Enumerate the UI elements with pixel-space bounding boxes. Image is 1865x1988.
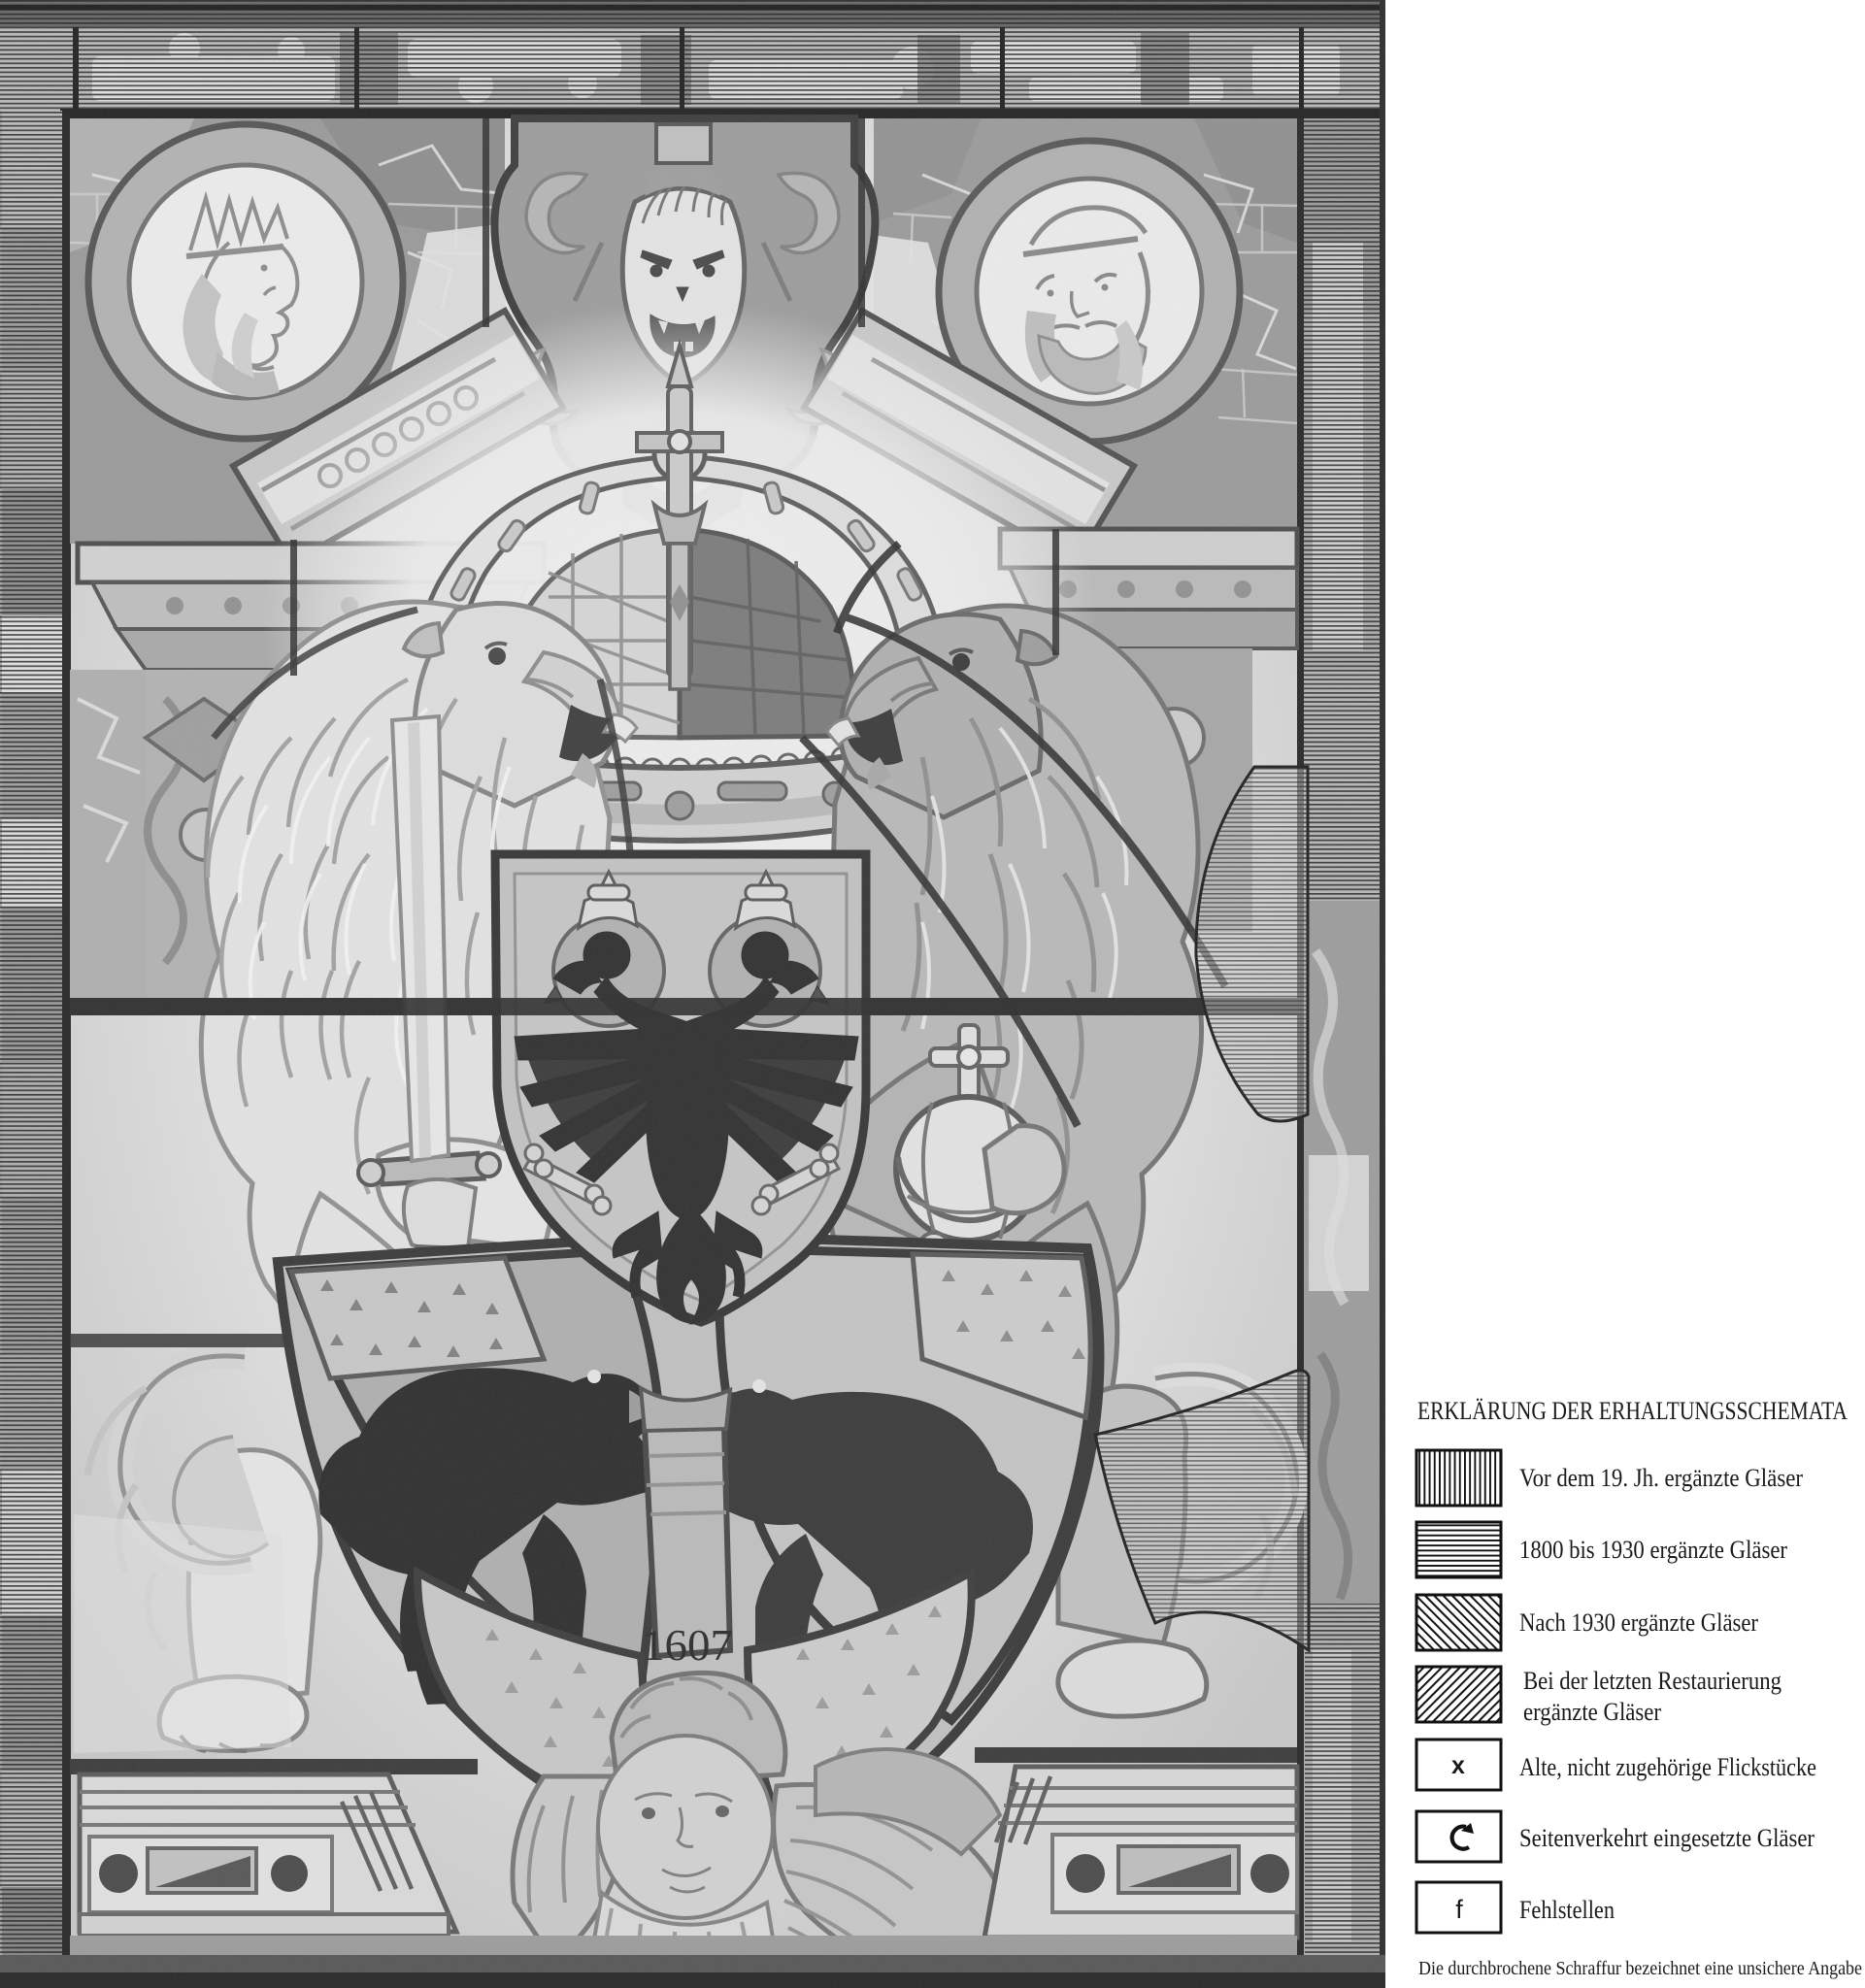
svg-text:Nach 1930 ergänzte Gläser: Nach 1930 ergänzte Gläser [1519,1608,1758,1637]
svg-text:ERKLÄRUNG DER ERHALTUNGSSCHEMA: ERKLÄRUNG DER ERHALTUNGSSCHEMATA [1417,1397,1848,1425]
svg-text:Bei der letzten Restaurierung: Bei der letzten Restaurierung [1523,1667,1782,1695]
svg-text:f: f [1455,1895,1463,1924]
svg-text:x: x [1451,1752,1465,1779]
svg-text:Die durchbrochene Schraffur be: Die durchbrochene Schraffur bezeichnet e… [1418,1959,1862,1979]
svg-text:Seitenverkehrt eingesetzte Glä: Seitenverkehrt eingesetzte Gläser [1519,1824,1815,1852]
svg-text:Vor dem 19. Jh. ergänzte Gläse: Vor dem 19. Jh. ergänzte Gläser [1519,1464,1803,1492]
svg-text:Fehlstellen: Fehlstellen [1519,1896,1615,1924]
svg-text:1800 bis 1930 ergänzte Gläser: 1800 bis 1930 ergänzte Gläser [1519,1536,1787,1564]
svg-text:Alte, nicht zugehörige Flickst: Alte, nicht zugehörige Flickstücke [1519,1753,1816,1781]
svg-text:ergänzte Gläser: ergänzte Gläser [1523,1698,1661,1726]
